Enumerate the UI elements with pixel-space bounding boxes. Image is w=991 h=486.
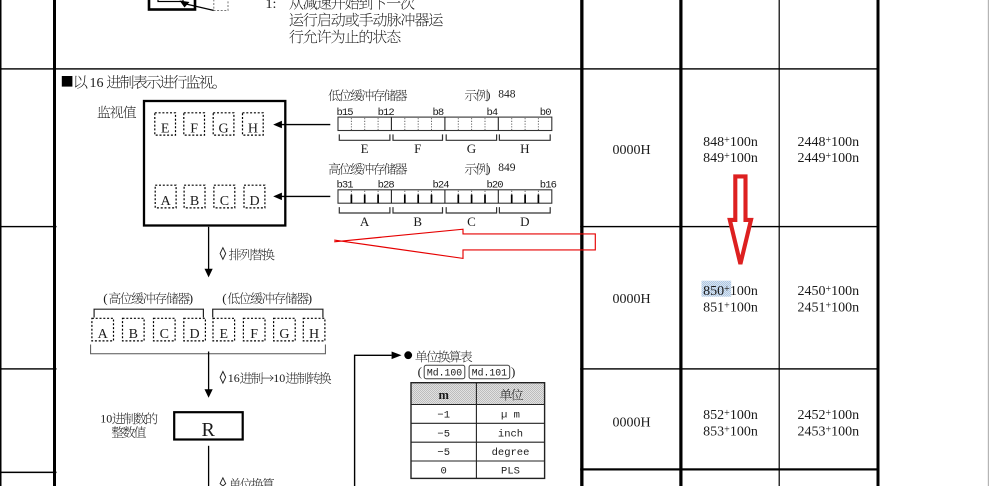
svg-text:PLS: PLS (501, 465, 520, 477)
svg-text:b15: b15 (337, 107, 354, 119)
svg-text:degree: degree (492, 447, 530, 459)
svg-text:10: 10 (273, 371, 285, 385)
svg-text:848+100n: 848+100n (703, 135, 758, 150)
svg-text:D: D (190, 327, 200, 342)
svg-text:2452+100n: 2452+100n (797, 408, 859, 423)
svg-text:2453+100n: 2453+100n (797, 424, 859, 439)
svg-text:C: C (220, 194, 229, 209)
svg-text:0000H: 0000H (612, 416, 650, 431)
svg-text:b12: b12 (378, 107, 395, 119)
svg-text:b8: b8 (433, 107, 444, 119)
svg-text:G: G (279, 327, 289, 342)
svg-text:): ) (487, 88, 491, 102)
svg-text:B: B (129, 327, 138, 342)
svg-text:−1: −1 (437, 410, 450, 422)
svg-text:G: G (467, 141, 476, 156)
svg-text:F: F (250, 327, 258, 342)
svg-text:0000H: 0000H (612, 143, 650, 158)
svg-text:B: B (190, 194, 199, 209)
svg-text:849: 849 (498, 162, 516, 174)
svg-text:b31: b31 (337, 180, 354, 192)
svg-text:(: ( (222, 291, 226, 306)
svg-text:2450+100n: 2450+100n (797, 284, 859, 299)
svg-text:R: R (202, 419, 216, 441)
svg-text:): ) (487, 162, 491, 176)
svg-text:(: ( (418, 364, 422, 379)
svg-text:F: F (190, 122, 198, 137)
svg-text:inch: inch (498, 428, 523, 440)
svg-text:): ) (189, 291, 193, 306)
svg-text:A: A (98, 327, 109, 342)
svg-text:H: H (248, 122, 258, 137)
svg-text:1:: 1: (266, 0, 277, 12)
svg-text:b4: b4 (487, 107, 498, 119)
svg-text:): ) (308, 291, 312, 306)
svg-text:850+100n: 850+100n (703, 284, 758, 299)
svg-text:b24: b24 (433, 180, 450, 192)
svg-text:(: ( (103, 291, 107, 306)
svg-text:16: 16 (228, 371, 240, 385)
svg-text:b20: b20 (487, 180, 504, 192)
svg-text:853+100n: 853+100n (703, 424, 758, 439)
svg-text:E: E (220, 327, 229, 342)
svg-text:16: 16 (90, 76, 104, 91)
svg-text:0: 0 (441, 465, 447, 477)
svg-text:A: A (161, 194, 172, 209)
svg-text:852+100n: 852+100n (703, 408, 758, 423)
svg-text:H: H (309, 327, 319, 342)
svg-text:): ) (511, 364, 515, 379)
svg-text:µ m: µ m (501, 410, 520, 422)
svg-text:E: E (161, 122, 170, 137)
svg-text:b28: b28 (378, 180, 395, 192)
svg-text:A: A (360, 214, 370, 229)
svg-text:E: E (361, 141, 369, 156)
svg-text:2449+100n: 2449+100n (797, 151, 859, 166)
svg-text:D: D (249, 194, 259, 209)
svg-text:2451+100n: 2451+100n (797, 301, 859, 316)
svg-text:B: B (413, 214, 422, 229)
svg-text:0000H: 0000H (612, 292, 650, 307)
svg-text:2448+100n: 2448+100n (797, 135, 859, 150)
svg-text:851+100n: 851+100n (703, 301, 758, 316)
svg-text:−5: −5 (437, 447, 450, 459)
svg-text:C: C (467, 214, 476, 229)
svg-text:−5: −5 (437, 428, 450, 440)
svg-text:b16: b16 (540, 180, 557, 192)
svg-text:D: D (520, 214, 529, 229)
svg-text:848: 848 (498, 89, 516, 101)
svg-text:Md.101: Md.101 (472, 367, 507, 378)
svg-text:849+100n: 849+100n (703, 151, 758, 166)
svg-text:m: m (438, 388, 449, 402)
svg-text:b0: b0 (540, 107, 551, 119)
svg-text:10: 10 (100, 412, 112, 426)
svg-text:H: H (520, 141, 529, 156)
svg-text:Md.100: Md.100 (427, 367, 462, 378)
svg-text:G: G (219, 122, 229, 137)
svg-text:C: C (160, 327, 169, 342)
svg-text:F: F (414, 141, 421, 156)
